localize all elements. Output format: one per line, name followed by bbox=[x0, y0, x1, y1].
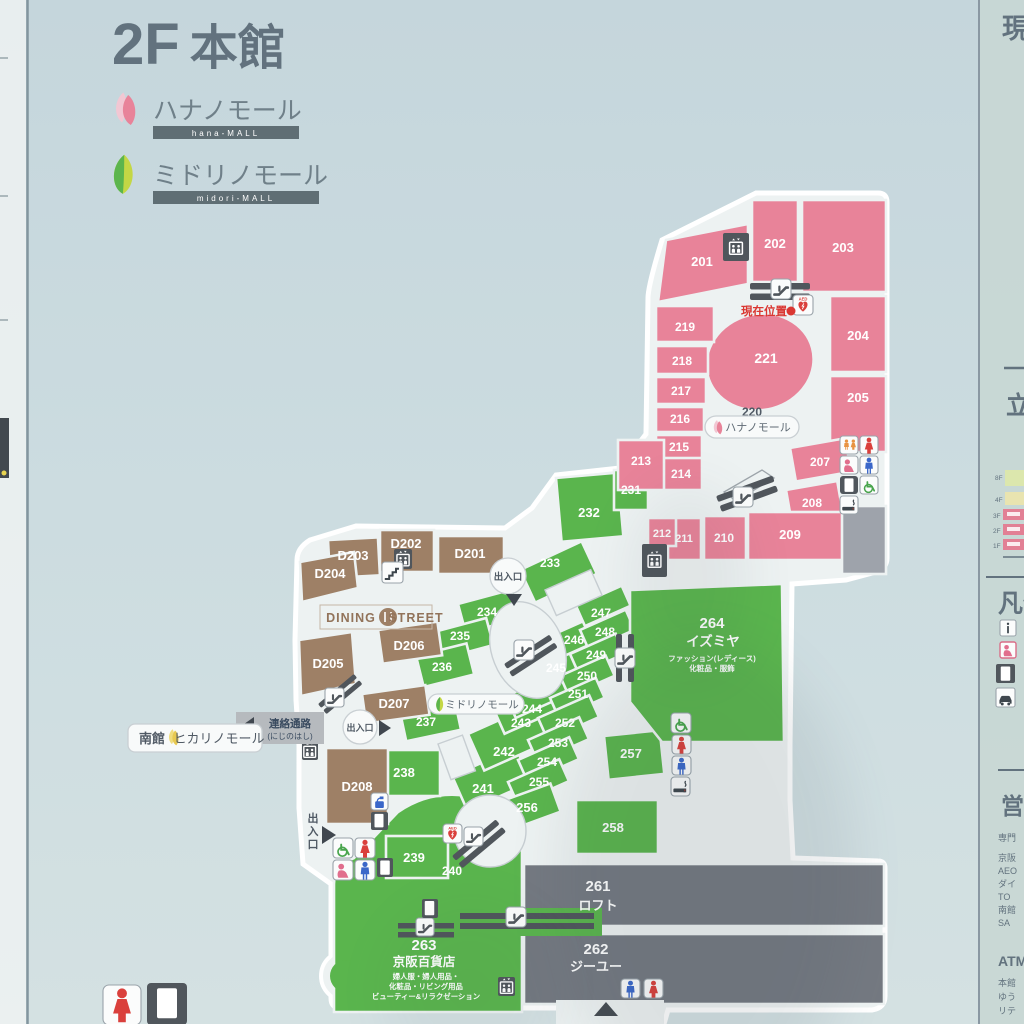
room-216-label: 216 bbox=[670, 412, 690, 426]
room-234-label: 234 bbox=[477, 605, 497, 619]
store-264-name: イズミヤ bbox=[686, 633, 740, 649]
womens-restroom-icon bbox=[860, 436, 878, 454]
room-215-label: 215 bbox=[669, 440, 689, 454]
svg-text:1F: 1F bbox=[993, 543, 1001, 550]
room-d204-label: D204 bbox=[314, 566, 346, 581]
store-264-desc1: ファッション(レディース) bbox=[668, 653, 756, 663]
accessible-restroom-icon bbox=[333, 838, 353, 858]
room-250-label: 250 bbox=[577, 669, 597, 683]
mall-directory-photo: AED 2F本館 ハナノモール hana-MALL ミドリノモール midori… bbox=[0, 0, 1024, 1024]
side-panel: 現在 立面 8F 4F 3F 2F 1F 凡例 営業 専門 京阪 AEO ダイ … bbox=[979, 0, 1024, 1024]
side-atm-lines: 本館 ゆう リテ bbox=[998, 977, 1016, 1016]
vending-machine-icon-238 bbox=[371, 812, 388, 830]
store-263-desc1: 婦人服・婦人用品・ bbox=[392, 972, 460, 981]
side-legend-title: 凡例 bbox=[998, 590, 1024, 618]
vending-machine-icon bbox=[840, 476, 858, 494]
legend-midori-en: midori-MALL bbox=[197, 194, 275, 203]
smoking-icon bbox=[840, 496, 858, 514]
room-d205-label: D205 bbox=[312, 656, 343, 671]
elevator-212 bbox=[642, 544, 667, 577]
room-207-label: 207 bbox=[810, 455, 830, 469]
room-d208-label: D208 bbox=[341, 779, 372, 794]
title-floor: 2F bbox=[112, 12, 180, 77]
title-building: 本館 bbox=[190, 22, 286, 75]
hana-mall-badge-label: ハナノモール bbox=[725, 421, 790, 434]
svg-text:SA: SA bbox=[998, 918, 1010, 928]
room-217-label: 217 bbox=[671, 384, 691, 398]
room-239-label: 239 bbox=[403, 850, 425, 865]
room-d203-label: D203 bbox=[337, 548, 368, 563]
room-252-label: 252 bbox=[555, 716, 575, 730]
womens-restroom-icon-cropped bbox=[103, 985, 141, 1024]
svg-text:AEO: AEO bbox=[998, 866, 1017, 876]
service-counter-icon bbox=[996, 664, 1015, 683]
baby-room-icon bbox=[840, 456, 858, 474]
mens-restroom-icon bbox=[860, 456, 878, 474]
room-249-label: 249 bbox=[586, 648, 606, 662]
stairs-icon bbox=[382, 562, 403, 583]
store-262-name: ジーユー bbox=[570, 959, 622, 974]
room-d207-label: D207 bbox=[378, 696, 409, 711]
room-221-label: 221 bbox=[754, 350, 778, 366]
room-233-label: 233 bbox=[540, 556, 560, 570]
south-building-label: 南館 bbox=[139, 731, 165, 746]
south-mall-label: ヒカリノモール bbox=[173, 731, 264, 746]
room-253-label: 253 bbox=[548, 736, 568, 750]
store-263-name: 京阪百貨店 bbox=[393, 954, 456, 969]
mens-restroom-icon bbox=[355, 860, 375, 880]
room-248-label: 248 bbox=[595, 625, 615, 639]
room-235-label: 235 bbox=[450, 629, 470, 643]
room-258-label: 258 bbox=[602, 820, 624, 835]
room-209 bbox=[748, 512, 856, 560]
store-263-desc3: ビューティー&リラクゼーション bbox=[372, 992, 480, 1001]
midori-mall-badge: ミドリノモール bbox=[428, 694, 524, 714]
svg-text:本館: 本館 bbox=[998, 977, 1016, 988]
left-panel-edge bbox=[0, 0, 28, 1024]
info-icon bbox=[1000, 620, 1016, 636]
room-246-label: 246 bbox=[564, 633, 584, 647]
room-204-label: 204 bbox=[847, 328, 869, 343]
svg-text:ゆう: ゆう bbox=[998, 992, 1016, 1002]
service-block bbox=[842, 506, 886, 574]
store-263-desc2: 化粧品・リビング用品 bbox=[389, 982, 463, 991]
room-211-label: 211 bbox=[675, 533, 693, 545]
baby-room-icon bbox=[333, 860, 353, 880]
svg-text:8F: 8F bbox=[995, 475, 1003, 482]
room-255-label: 255 bbox=[529, 775, 549, 789]
store-264-desc2: 化粧品・服飾 bbox=[689, 663, 735, 673]
legend-midori-label: ミドリノモール bbox=[153, 162, 328, 190]
vending-263 bbox=[422, 899, 438, 918]
accessible-restroom-icon bbox=[860, 476, 878, 494]
room-d201-label: D201 bbox=[454, 546, 485, 561]
room-d206-label: D206 bbox=[393, 638, 424, 653]
room-243-label: 243 bbox=[511, 716, 531, 730]
store-263-no: 263 bbox=[411, 937, 436, 954]
water-fountain-icon bbox=[371, 793, 388, 810]
dining-word1: DINING bbox=[326, 611, 376, 625]
svg-text:2F: 2F bbox=[993, 528, 1001, 535]
family-restroom-icon bbox=[840, 436, 858, 454]
room-213-label: 213 bbox=[631, 454, 651, 468]
room-241-label: 241 bbox=[472, 781, 494, 796]
current-location-dot bbox=[787, 307, 796, 316]
side-current-title: 現在 bbox=[1002, 14, 1024, 44]
south-exit-tab bbox=[556, 1000, 664, 1024]
room-d202-label: D202 bbox=[390, 536, 421, 551]
store-261-no: 261 bbox=[585, 878, 610, 895]
mens-restroom-icon bbox=[672, 756, 691, 775]
elevator-connector bbox=[302, 742, 318, 760]
room-232-label: 232 bbox=[578, 505, 600, 520]
room-208-label: 208 bbox=[802, 496, 822, 510]
aed-icon bbox=[793, 295, 813, 315]
room-203-label: 203 bbox=[832, 240, 854, 255]
room-237-label: 237 bbox=[416, 715, 436, 729]
accessible-restroom-icon bbox=[671, 713, 691, 733]
svg-text:南館: 南館 bbox=[998, 904, 1016, 915]
legend-hana-en: hana-MALL bbox=[192, 129, 260, 138]
room-251-label: 251 bbox=[568, 687, 588, 701]
baby-room-icon bbox=[1000, 642, 1016, 658]
entrance-label: 出入口 bbox=[346, 722, 373, 733]
vending-machine-icon bbox=[377, 858, 393, 877]
connector-sub: (にじのはし) bbox=[267, 732, 313, 741]
room-219-label: 219 bbox=[675, 320, 695, 334]
room-210-label: 210 bbox=[714, 531, 734, 545]
vending-machine-icon-cropped bbox=[147, 983, 187, 1024]
entrance-label: 出入口 bbox=[494, 571, 523, 583]
womens-restroom-icon bbox=[644, 979, 663, 998]
womens-restroom-icon bbox=[355, 838, 375, 858]
svg-text:リテ: リテ bbox=[998, 1006, 1016, 1016]
womens-restroom-icon bbox=[672, 735, 691, 754]
current-location-label: 現在位置 bbox=[741, 304, 787, 318]
svg-text:TO: TO bbox=[998, 892, 1010, 902]
room-231-label: 231 bbox=[621, 483, 641, 497]
svg-text:4F: 4F bbox=[995, 497, 1003, 504]
legend-hana-label: ハナノモール bbox=[153, 97, 302, 125]
room-209-label: 209 bbox=[779, 527, 801, 542]
svg-text:ダイ: ダイ bbox=[998, 878, 1016, 889]
room-244-label: 244 bbox=[522, 702, 542, 716]
aed-icon-rotunda bbox=[443, 824, 462, 843]
room-214-label: 214 bbox=[671, 467, 691, 481]
store-264-no: 264 bbox=[699, 615, 725, 632]
store-261-name: ロフト bbox=[578, 898, 617, 913]
car-service-icon bbox=[996, 688, 1015, 707]
smoking-icon bbox=[671, 777, 690, 796]
map-bump-green bbox=[330, 960, 362, 992]
room-254-label: 254 bbox=[537, 755, 557, 769]
side-elevation-title: 立面 bbox=[1006, 391, 1024, 420]
svg-text:出入口: 出入口 bbox=[308, 811, 319, 851]
room-238-label: 238 bbox=[393, 765, 415, 780]
room-201-label: 201 bbox=[691, 254, 713, 269]
elevator-201 bbox=[723, 233, 749, 261]
room-236-label: 236 bbox=[432, 660, 452, 674]
dining-word2: STREET bbox=[388, 611, 443, 625]
svg-text:京阪: 京阪 bbox=[998, 852, 1016, 863]
room-240-label: 240 bbox=[442, 864, 462, 878]
svg-text:専門: 専門 bbox=[998, 832, 1016, 843]
room-257-label: 257 bbox=[620, 746, 642, 761]
mens-restroom-icon bbox=[621, 979, 640, 998]
midori-mall-badge-label: ミドリノモール bbox=[445, 699, 519, 711]
connector-label: 連絡通路 bbox=[269, 717, 311, 730]
south-building-badge: 南館 ヒカリノモール bbox=[128, 724, 265, 752]
page-title: 2F本館 bbox=[112, 12, 286, 77]
room-264 bbox=[630, 584, 784, 742]
room-247-label: 247 bbox=[591, 606, 611, 620]
room-202-label: 202 bbox=[764, 236, 786, 251]
elevator-263 bbox=[498, 977, 515, 996]
store-262-no: 262 bbox=[583, 941, 608, 958]
room-205-label: 205 bbox=[847, 390, 869, 405]
room-256-label: 256 bbox=[516, 800, 538, 815]
svg-text:3F: 3F bbox=[993, 513, 1001, 520]
room-245-label: 245 bbox=[546, 661, 566, 675]
room-242-label: 242 bbox=[493, 744, 515, 759]
room-212-label: 212 bbox=[653, 528, 671, 540]
side-hours-title: 営業 bbox=[1001, 793, 1024, 819]
room-218-label: 218 bbox=[672, 354, 692, 368]
side-atm-title: ATM bbox=[998, 953, 1024, 969]
hana-mall-badge: ハナノモール bbox=[705, 416, 799, 438]
